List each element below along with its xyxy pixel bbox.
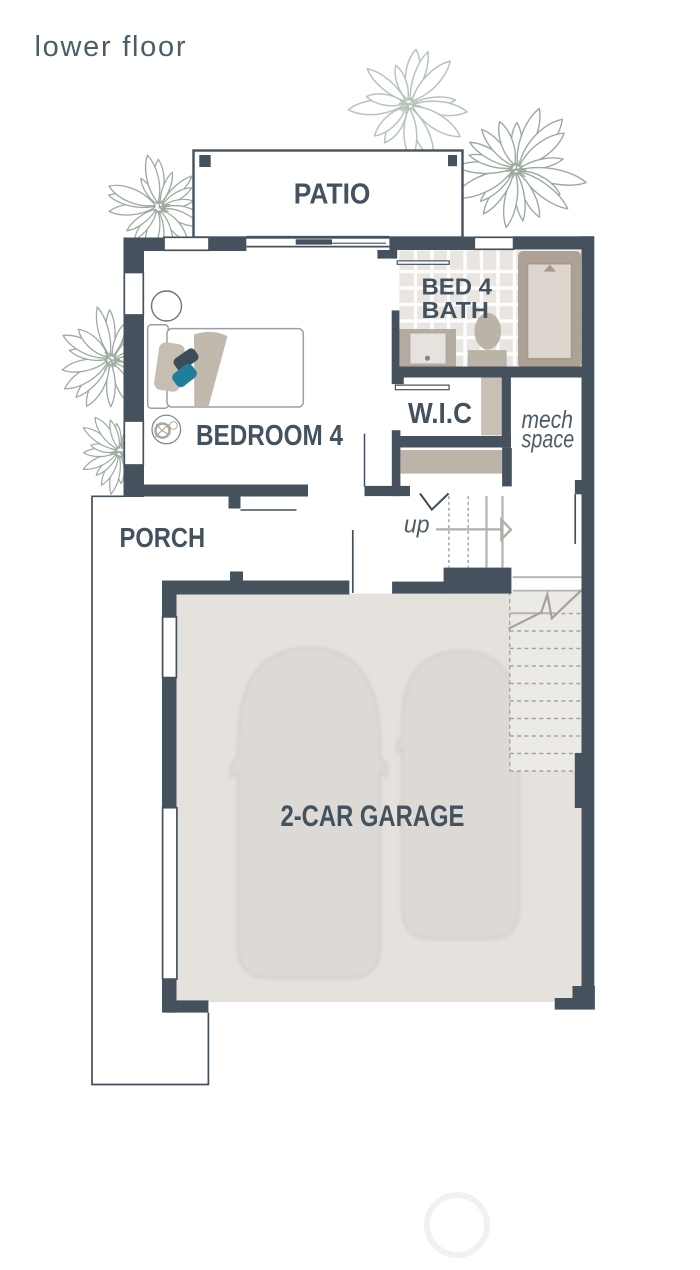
svg-text:lower floor: lower floor xyxy=(35,31,186,63)
svg-text:2-CAR GARAGE: 2-CAR GARAGE xyxy=(281,798,465,832)
svg-text:up: up xyxy=(404,511,430,539)
svg-text:PORCH: PORCH xyxy=(120,524,206,554)
svg-text:BEDROOM 4: BEDROOM 4 xyxy=(196,419,343,451)
svg-text:space: space xyxy=(522,425,575,453)
svg-text:BATH: BATH xyxy=(422,298,489,324)
svg-text:W.I.C: W.I.C xyxy=(408,397,472,429)
svg-text:PATIO: PATIO xyxy=(294,177,371,209)
